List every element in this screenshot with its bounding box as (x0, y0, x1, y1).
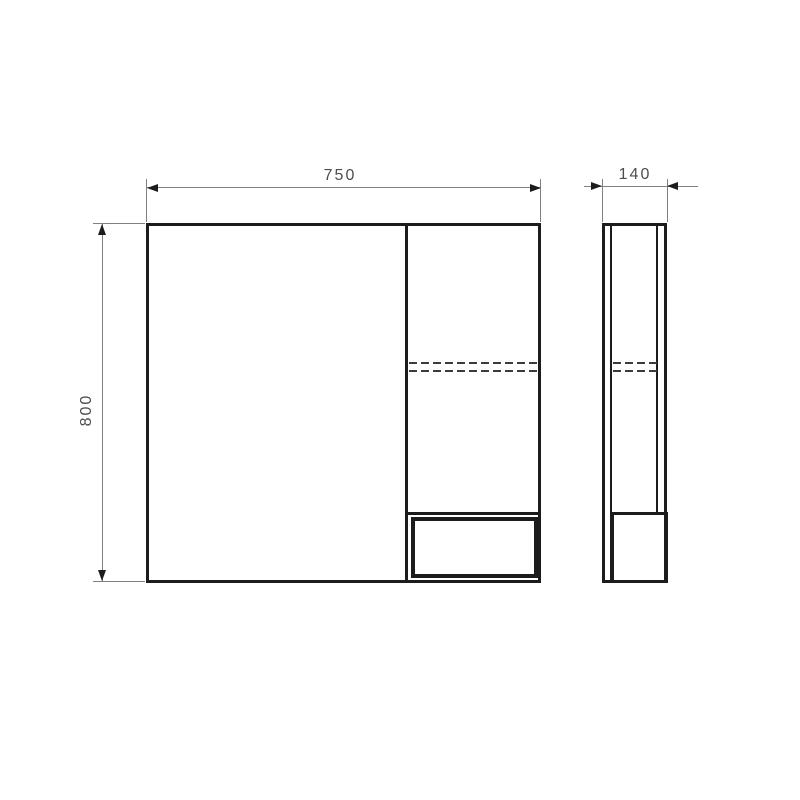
technical-drawing: 750 800 140 (0, 0, 800, 800)
height-arrow-bottom-icon (98, 570, 106, 581)
height-dimension-label: 800 (78, 370, 96, 450)
side-view-bottom-box (611, 512, 668, 583)
width-dimension-line (147, 187, 541, 188)
side-view-shelf-dashed-upper (613, 362, 657, 364)
width-arrow-start-icon (147, 184, 158, 192)
front-view-drawer-front (411, 517, 538, 578)
front-view-shelf-dashed-lower (409, 370, 539, 372)
height-dimension-line (102, 224, 103, 581)
width-dimension-label: 750 (300, 167, 380, 185)
front-view-shelf-dashed-upper (409, 362, 539, 364)
side-view-shelf-dashed-lower (613, 370, 657, 372)
width-arrow-end-icon (530, 184, 541, 192)
height-arrow-top-icon (98, 224, 106, 235)
front-view-door-divider (405, 223, 408, 583)
depth-dimension-label: 140 (595, 166, 675, 184)
height-extension-line-bottom (93, 581, 145, 582)
front-view-drawer-divider (405, 512, 541, 515)
